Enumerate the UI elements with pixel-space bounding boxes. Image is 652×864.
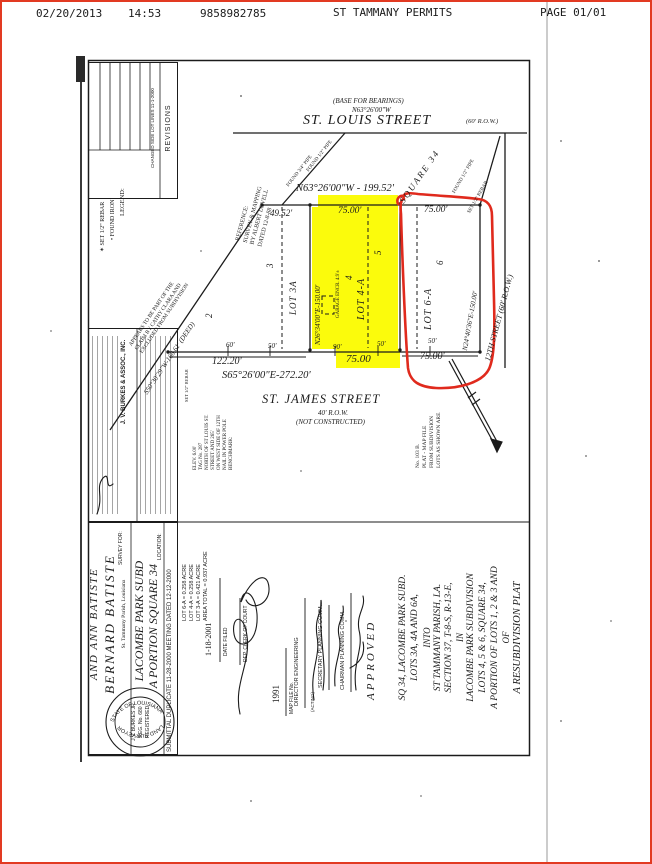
area-total: AREA TOTAL = 0.937 ACRE <box>204 551 210 621</box>
title-line-9: INTO <box>423 525 432 750</box>
st-james-note: (NOT CONSTRUCTED) <box>296 419 365 426</box>
dim-12220: 122.20' <box>212 357 242 367</box>
secretary-label: SECRETARY PLANNING COMM. <box>319 605 325 688</box>
lot3a-label: LOT 3A <box>289 280 298 315</box>
monument-set-rebar-2: SET 1/2" REBAR <box>185 369 190 402</box>
legend-set-rebar: ✶ SET 1/2" REBAR <box>100 202 106 252</box>
parish-line: St. Tammany Parish, Louisiana <box>122 548 128 680</box>
map-file-label: MAP FILE No. <box>290 682 295 714</box>
title-line-5: LACOMBE PARK SUBDIVISION <box>467 525 477 750</box>
seal-line2: REG. No. 680 <box>138 706 144 737</box>
title-line-1: A RESUBDIVISION PLAT <box>513 525 524 750</box>
tick-60: 60' <box>226 342 235 349</box>
title-line-7: SECTION 37, T-8-S, R-13-E, <box>445 525 455 750</box>
approval-rules <box>220 578 351 716</box>
chairman-label: CHAIRMAN PLANNING COMM. <box>341 611 347 690</box>
date-filed-value: 1-18-2001 <box>205 623 213 656</box>
benchmark-line5: NORTH OF ST LOUIS ST. <box>205 415 210 471</box>
title-line-3: A PORTION OF LOTS 1, 2 & 3 AND <box>491 525 501 750</box>
location-line2: LACOMBE PARK SUBD <box>133 535 145 707</box>
lot6-old-label: 6 <box>436 261 445 266</box>
dim-75-top-lot6a: 75.00' <box>424 206 447 216</box>
legend-title: LEGEND: <box>120 188 127 216</box>
revisions-title: REVISIONS <box>165 64 172 192</box>
plat-note-line4: No. 103 B. <box>416 444 422 468</box>
faxed-plat-document: { "colors": {"highlight": "#fbfb0c", "an… <box>0 0 652 864</box>
title-line-10: LOTS 3A, 4A AND 6A, <box>411 525 421 750</box>
seal-line1: J.V. BURKES JR <box>131 703 137 741</box>
legend-found-iron: • FOUND IRON <box>110 200 116 240</box>
title-line-6: IN <box>456 525 465 750</box>
fax-sender: ST TAMMANY PERMITS <box>333 7 452 18</box>
survey-for-label: SURVEY FOR: <box>119 531 124 565</box>
north-arrow <box>449 359 502 452</box>
submittal-note: SUBMITTAL DUPLICATE 11-28-2000 MEETING D… <box>167 569 173 752</box>
dim-75-bottom-lot4a: 75.00 <box>346 354 371 365</box>
fax-page: PAGE 01/01 <box>540 7 606 18</box>
south-boundary-bearing: S65°26'00"E-272.20' <box>222 371 311 382</box>
date-filed-label: DATE FILED <box>224 627 229 656</box>
lot4a-label: LOT 4-A <box>357 278 367 320</box>
plat-note-line2: FROM SUBDIVISION <box>430 416 436 468</box>
fax-noise <box>0 0 2 2</box>
signature-chairman <box>350 596 364 690</box>
fax-time: 14:53 <box>128 8 161 19</box>
firm-name: J. V. BURKES & ASSOC., INC. <box>121 336 127 428</box>
benchmark-line3: ON WEST SIDE OF 12TH <box>217 415 222 470</box>
fax-date: 02/20/2013 <box>36 8 102 19</box>
bearing-note: (BASE FOR BEARINGS) <box>333 98 404 105</box>
benchmark-line7: ELEV. 6.00' <box>193 446 198 470</box>
benchmark-line4: STREET AND 265' <box>211 430 216 470</box>
plat-note-line1: LOTS AS SHOWN ARE <box>437 413 443 468</box>
title-line-4: LOTS 4, 5 & 6, SQUARE 34, <box>479 525 489 750</box>
title-line-8: ST TAMMANY PARISH, LA. <box>434 525 444 750</box>
street-st-louis: ST. LOUIS STREET <box>303 114 431 128</box>
location-line1: A PORTION SQUARE 34 <box>147 540 159 712</box>
area-lot6a: LOT 6-A = 0.258 ACRE <box>183 564 189 621</box>
north-boundary-bearing: N63°26'00"W - 199.52' <box>296 184 394 195</box>
client-name-1: BERNARD BATISTE <box>103 533 116 715</box>
dim-4952: 49.52' <box>270 209 292 218</box>
area-lot3a: LOT 3-A = 0.421 ACRE <box>197 564 203 621</box>
clerk-label: DEP. CLERK OF COURT <box>244 606 249 663</box>
acting-label: (ACTING) <box>311 692 316 712</box>
map-file-value: 1991 <box>272 685 281 703</box>
signature-clerk <box>234 578 269 714</box>
plat-note-line3: PLAT - MAP FILE <box>423 426 429 468</box>
client-name-2: AND ANN BATISTE <box>89 543 100 705</box>
illegible-fine-print-2 <box>140 336 174 514</box>
scan-edge-blob <box>76 56 85 82</box>
approved-label: APPROVED <box>366 620 377 700</box>
tick-50b: 50' <box>377 341 386 348</box>
tick-90: 90' <box>333 344 342 351</box>
tick-50a: 50' <box>268 343 277 350</box>
area-lot4a: LOT 4-A = 0.258 ACRE <box>190 564 196 621</box>
highlight-lot4a <box>312 207 398 349</box>
garage-note: GARAGE ENCR. 4.9'± <box>336 270 341 318</box>
street-st-james: ST. JAMES STREET <box>262 393 380 406</box>
director-label: DIRECTOR ENGINEERING <box>295 637 301 706</box>
dim-75-top-lot4a: 75.00' <box>338 207 361 217</box>
illegible-fine-print-1 <box>92 336 118 514</box>
lot4-old-label: 4 <box>345 276 354 281</box>
title-line-2: OF <box>502 525 511 750</box>
st-louis-row: (60' R.O.W.) <box>466 119 498 126</box>
benchmark-line2: NAIL IN POWER POLE <box>223 419 228 470</box>
fax-number: 9858982785 <box>200 8 266 19</box>
benchmark-line1: BENCHMARK: <box>229 437 234 470</box>
lot2-old-label: 2 <box>205 314 214 319</box>
dim-75-bottom-lot6a: 75.00' <box>420 352 445 362</box>
st-james-row: 40' R.O.W. <box>318 410 348 417</box>
lot4a-west-bearing: N26°34'00"E-150.00' <box>315 285 322 345</box>
lot6a-label: LOT 6-A <box>424 288 434 330</box>
lot5-old-label: 5 <box>374 251 383 256</box>
lot3-old-label: 3 <box>266 264 275 269</box>
benchmark-line6: TAG No. 287 <box>199 443 204 470</box>
tick-50-lot6a: 50' <box>428 338 437 345</box>
title-line-11: SQ 34, LACOMBE PARK SUBD. <box>399 525 409 750</box>
revisions-entry: CHANGED SIDE LOT LINES 11-1-2000 <box>151 62 156 194</box>
